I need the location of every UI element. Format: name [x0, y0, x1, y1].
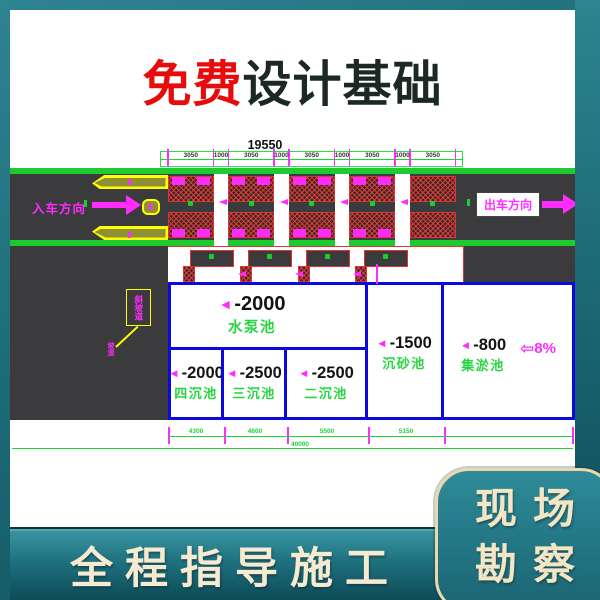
second-sediment-tank: ◄-2500 二沉池: [284, 347, 368, 420]
cad-mark: [84, 200, 87, 207]
silt-tank-name: 集淤池: [461, 355, 505, 374]
centerline-mark: [249, 201, 254, 206]
third-tank-name: 三沉池: [232, 383, 276, 402]
slope-value: 8%: [534, 340, 556, 357]
dim-segment-label: 3050: [420, 153, 446, 160]
entry-direction-label: 入车方向: [32, 198, 86, 217]
dim-bottom-label: 5150: [386, 429, 426, 436]
centerline-mark: [309, 201, 314, 206]
bay-separator: [214, 174, 229, 246]
title-rest: 设计基础: [243, 45, 443, 116]
ramp-tag: 斜坡道: [126, 289, 151, 326]
slope-label: ⇦8%: [520, 339, 556, 359]
dim-segment-label: 3050: [238, 153, 264, 160]
grit-tank: ◄-1500 沉砂池: [365, 282, 444, 420]
centerline-arrow-icon: [397, 199, 408, 205]
ramp-note: 坡道: [107, 342, 114, 356]
dim-segment-label: 3050: [359, 153, 385, 160]
wash-pad: [353, 229, 366, 237]
pump-tank-level: ◄-2000: [218, 294, 285, 315]
dim-tick: [455, 149, 457, 166]
dim-bottom-label: 4600: [235, 429, 275, 436]
second-tank-name: 二沉池: [304, 383, 348, 402]
fourth-sediment-tank: ◄-2000 四沉池: [168, 347, 224, 420]
survey-box: 现场 勘察: [435, 468, 600, 600]
centerline-arrow-icon: [337, 199, 348, 205]
pump-tank-name: 水泵池: [228, 316, 276, 337]
dim-line-bottom: [168, 436, 572, 437]
grit-tank-level: ◄-1500: [376, 335, 432, 352]
bottom-banner-text: 全程指导施工: [10, 534, 460, 596]
survey-line-1: 现场: [459, 481, 591, 537]
dim-segment-label: 3050: [299, 153, 325, 160]
dim-bottom-label: 4300: [176, 429, 216, 436]
wash-pad: [172, 229, 185, 237]
pump-tank: ◄-2000 水泵池: [168, 282, 368, 350]
centerline-mark: [370, 201, 375, 206]
dim-bottom-label: 5500: [307, 429, 347, 436]
silt-level-value: -800: [473, 336, 506, 354]
centerline-mark: [430, 201, 435, 206]
pump-level-value: -2000: [234, 293, 285, 315]
wash-pad: [378, 229, 391, 237]
level-arrow-icon: ◄: [376, 338, 387, 350]
level-arrow-icon: ◄: [460, 340, 471, 352]
level-arrow-icon: ◄: [226, 368, 237, 380]
dim-segment-label: 1000: [208, 153, 234, 160]
wash-pad: [172, 177, 185, 185]
ground-right: [464, 246, 575, 284]
grit-level-value: -1500: [390, 334, 432, 352]
wash-pad: [232, 229, 245, 237]
exit-direction-label: 出车方向: [476, 192, 540, 217]
ground-left: [10, 246, 168, 420]
dim-line-overall: [12, 448, 573, 449]
centerline-arrow-icon: [216, 199, 227, 205]
wash-pad: [197, 177, 210, 185]
dim-segment-label: 1000: [269, 153, 295, 160]
dim-tick: [167, 149, 169, 166]
title-highlight: 免费: [142, 45, 242, 116]
wash-pad: [293, 229, 306, 237]
wash-pad: [318, 177, 331, 185]
wash-pad: [232, 177, 245, 185]
grit-tank-name: 沉砂池: [382, 353, 426, 372]
island-tick: [128, 179, 131, 185]
fourth-level-value: -2000: [182, 364, 224, 382]
wash-pad: [293, 177, 306, 185]
centerline-mark: [188, 201, 193, 206]
dim-segment-label: 1000: [389, 153, 415, 160]
channel-mark: [209, 254, 214, 259]
dim-tick-bottom: [572, 427, 574, 444]
channel-mark: [325, 254, 330, 259]
entry-arrow-head-icon: [126, 195, 151, 215]
dim-overall-label: 40000: [280, 442, 320, 449]
centerline-arrow-icon: [277, 199, 288, 205]
page-title: 免费设计基础: [10, 40, 575, 120]
wash-pad: [318, 229, 331, 237]
cad-mark: [467, 199, 470, 206]
entry-arrow-icon: [92, 202, 126, 208]
fourth-tank-name: 四沉池: [174, 383, 218, 402]
channel-arrow-icon: [235, 271, 246, 277]
dim-total-label: 19550: [225, 138, 305, 152]
wash-pad: [353, 177, 366, 185]
second-level-value: -2500: [312, 364, 354, 382]
dim-segment-label: 1000: [329, 153, 355, 160]
fourth-tank-level: ◄-2000: [168, 365, 224, 382]
slope-arrow-icon: ⇦: [520, 339, 534, 358]
channel-arrow-icon: [350, 271, 361, 277]
bay-separator: [274, 174, 289, 246]
level-arrow-icon: ◄: [218, 296, 232, 312]
wash-bay-hatch-top: [410, 176, 456, 202]
channel-mark: [267, 254, 272, 259]
level-arrow-icon: ◄: [168, 368, 179, 380]
third-sediment-tank: ◄-2500 三沉池: [221, 347, 287, 420]
exit-arrow-icon: [542, 201, 564, 208]
channel-mark: [383, 254, 388, 259]
channel-arrow-icon: [292, 271, 303, 277]
island-tick: [128, 232, 131, 238]
silt-tank: ◄-800 集淤池 ⇦8%: [441, 282, 575, 420]
wash-pad: [257, 177, 270, 185]
promo-poster: 免费设计基础 19550 入车方向 出车方向 斜坡道 坡道 ◄-2000 水泵池…: [0, 0, 600, 600]
pier-hatch: [183, 266, 195, 282]
silt-tank-level: ◄-800: [460, 337, 506, 354]
survey-line-2: 勘察: [459, 537, 591, 593]
second-tank-level: ◄-2500: [298, 365, 354, 382]
third-tank-level: ◄-2500: [226, 365, 282, 382]
wash-pad: [257, 229, 270, 237]
level-arrow-icon: ◄: [298, 368, 309, 380]
bay-separator: [395, 174, 410, 246]
bay-separator: [335, 174, 350, 246]
dim-segment-label: 3050: [178, 153, 204, 160]
wash-pad: [378, 177, 391, 185]
third-level-value: -2500: [240, 364, 282, 382]
inlet-arrow-icon: [376, 264, 378, 284]
wash-pad: [197, 229, 210, 237]
wash-bay-hatch-bottom: [410, 212, 456, 238]
